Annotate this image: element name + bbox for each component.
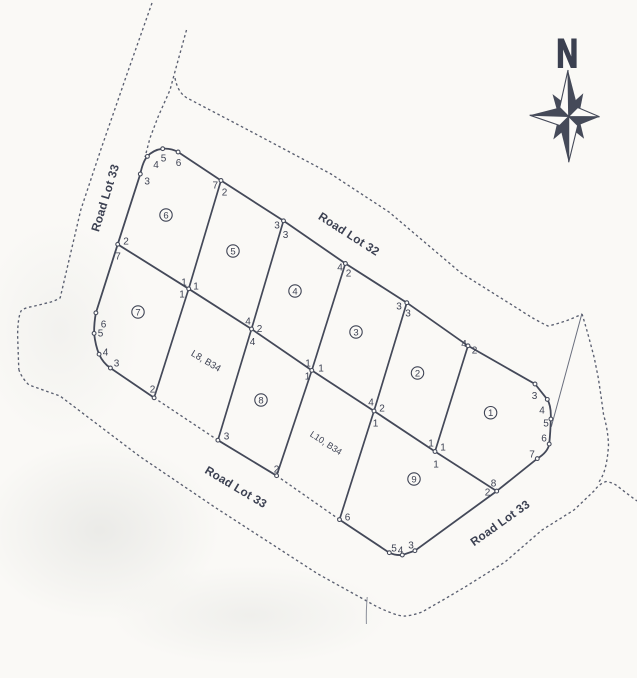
svg-text:1: 1 — [179, 290, 185, 301]
svg-text:8: 8 — [258, 396, 263, 407]
svg-text:3: 3 — [405, 309, 411, 320]
svg-text:3: 3 — [144, 177, 150, 188]
svg-text:3: 3 — [396, 302, 402, 313]
svg-text:1: 1 — [488, 408, 493, 419]
svg-text:4: 4 — [539, 406, 545, 417]
svg-text:4: 4 — [398, 546, 404, 557]
svg-text:7: 7 — [115, 252, 121, 263]
svg-text:4: 4 — [245, 317, 251, 328]
svg-text:3: 3 — [224, 432, 230, 443]
svg-text:1: 1 — [373, 419, 379, 430]
svg-text:4: 4 — [250, 337, 256, 348]
svg-text:2: 2 — [415, 369, 420, 380]
svg-text:6: 6 — [541, 434, 547, 445]
svg-text:2: 2 — [257, 324, 263, 335]
svg-text:3: 3 — [408, 541, 414, 552]
svg-text:1: 1 — [428, 439, 434, 450]
svg-text:5: 5 — [98, 329, 104, 340]
svg-text:4: 4 — [292, 287, 297, 298]
svg-text:2: 2 — [485, 488, 491, 499]
svg-text:6: 6 — [176, 158, 182, 169]
svg-text:2: 2 — [274, 465, 280, 476]
svg-text:1: 1 — [318, 364, 324, 375]
svg-text:2: 2 — [472, 346, 478, 357]
svg-text:5: 5 — [230, 247, 235, 258]
svg-text:4: 4 — [337, 263, 343, 274]
svg-text:3: 3 — [283, 230, 289, 241]
svg-text:1: 1 — [181, 278, 187, 289]
svg-text:2: 2 — [150, 385, 156, 396]
svg-text:2: 2 — [379, 404, 385, 415]
svg-text:2: 2 — [123, 237, 129, 248]
svg-text:6: 6 — [345, 513, 351, 524]
svg-text:3: 3 — [353, 328, 358, 339]
svg-text:9: 9 — [411, 475, 416, 486]
svg-text:1: 1 — [433, 460, 439, 471]
svg-text:8: 8 — [491, 479, 497, 490]
svg-text:7: 7 — [213, 181, 219, 192]
svg-text:5: 5 — [161, 154, 167, 165]
svg-text:4: 4 — [368, 398, 374, 409]
svg-text:2: 2 — [222, 188, 228, 199]
svg-text:7: 7 — [529, 450, 535, 461]
svg-text:2: 2 — [346, 269, 352, 280]
svg-text:1: 1 — [305, 359, 311, 370]
svg-text:1: 1 — [440, 443, 446, 454]
svg-text:1: 1 — [193, 282, 199, 293]
svg-text:6: 6 — [163, 211, 168, 222]
svg-text:5: 5 — [543, 419, 549, 430]
svg-text:4: 4 — [103, 348, 109, 359]
svg-text:5: 5 — [391, 544, 397, 555]
svg-text:3: 3 — [532, 391, 538, 402]
svg-text:3: 3 — [274, 221, 280, 232]
svg-text:1: 1 — [305, 372, 311, 383]
svg-text:4: 4 — [153, 160, 159, 171]
svg-text:4: 4 — [461, 339, 467, 350]
svg-text:7: 7 — [135, 308, 140, 319]
svg-text:3: 3 — [114, 359, 120, 370]
